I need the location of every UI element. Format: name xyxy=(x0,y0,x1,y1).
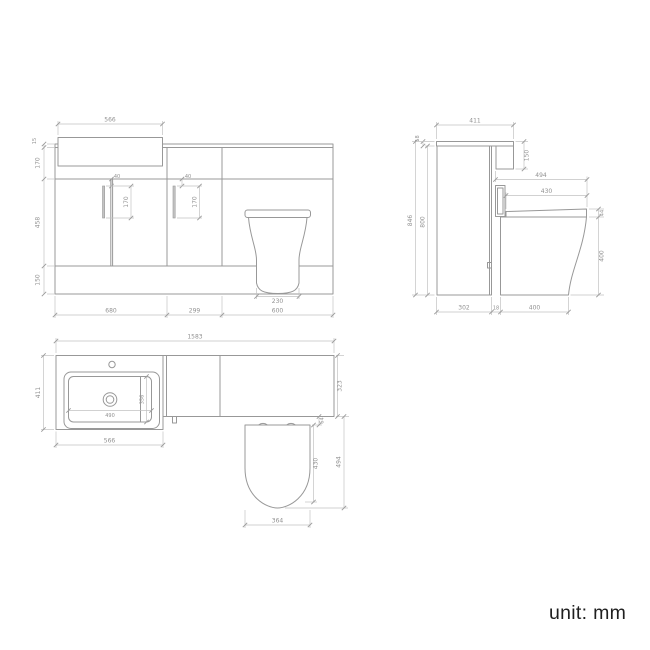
dim-pan-base-width: 230 xyxy=(272,298,284,305)
toilet-pan-side xyxy=(501,217,587,295)
dim-side-seat-depth: 430 xyxy=(541,188,553,195)
dim-plan-basin-width: 566 xyxy=(104,438,116,445)
unit-label: unit: mm xyxy=(549,602,626,625)
dim-side-worktop-depth: 411 xyxy=(469,118,481,125)
dim-side-cabinet-height: 800 xyxy=(420,216,427,228)
dim-side-pan-projection: 494 xyxy=(535,172,547,179)
front-elevation-view: 566 15 170 458 150 40 170 40 xyxy=(32,117,335,319)
dim-side-seat-thickness: 44 xyxy=(600,210,606,216)
fascia-return xyxy=(496,146,514,169)
door-handle-left xyxy=(103,186,105,218)
dim-front-basin-width: 566 xyxy=(104,117,116,124)
dim-vanity-unit-width: 680 xyxy=(105,308,117,315)
toilet-seat-plan xyxy=(245,425,310,508)
tap-hole xyxy=(109,361,115,367)
cabinet-side xyxy=(437,146,492,295)
door-handle-mid xyxy=(173,186,175,218)
basin-front xyxy=(58,138,163,167)
dim-front-worktop-thickness: 15 xyxy=(32,138,38,144)
dim-side-overall-height: 846 xyxy=(407,215,414,227)
dim-plan-basin-unit-depth: 411 xyxy=(35,387,42,399)
toilet-pan-front xyxy=(249,218,308,294)
toilet-seat-side xyxy=(506,209,587,217)
toilet-seat-front xyxy=(245,210,311,218)
dim-side-cabinet-depth: 302 xyxy=(458,305,470,312)
side-elevation-view: 411 18 150 846 800 494 xyxy=(407,118,606,316)
dim-front-plinth-height: 150 xyxy=(35,274,42,286)
dim-plan-seat-depth: 430 xyxy=(313,458,320,470)
dim-plan-bowl-width: 490 xyxy=(105,413,115,419)
dim-mid-handle-offset: 40 xyxy=(185,174,191,180)
dim-left-handle-offset: 40 xyxy=(114,174,120,180)
plan-view: 1583 411 490 356 566 323 xyxy=(35,334,349,529)
dim-mid-handle-length: 170 xyxy=(192,196,199,208)
dim-plan-seat-setback: 64 xyxy=(320,417,326,423)
flush-plate xyxy=(496,186,506,217)
dim-left-handle-length: 170 xyxy=(123,196,130,208)
dim-plan-worktop-depth: 323 xyxy=(337,380,344,392)
dim-mid-unit-width: 299 xyxy=(189,308,201,315)
dim-plan-bowl-depth: 356 xyxy=(140,395,146,405)
dim-front-basin-zone-height: 170 xyxy=(35,157,42,169)
dim-side-pan-depth: 400 xyxy=(529,305,541,312)
worktop-side xyxy=(437,142,514,147)
front-object-lines xyxy=(55,138,333,295)
dim-side-fascia-drop: 150 xyxy=(524,150,531,162)
dim-wc-unit-width: 600 xyxy=(272,308,284,315)
dim-side-gap: 18 xyxy=(493,306,499,312)
dim-plan-seat-width: 364 xyxy=(272,518,284,525)
handle-plan xyxy=(173,417,177,424)
side-object-lines xyxy=(437,142,587,296)
dim-plan-overall-width: 1583 xyxy=(187,334,202,341)
technical-drawing-page: 566 15 170 458 150 40 170 40 xyxy=(0,0,650,650)
dim-front-door-height: 458 xyxy=(35,217,42,229)
plan-object-lines xyxy=(56,356,334,509)
drawing-canvas: 566 15 170 458 150 40 170 40 xyxy=(0,0,650,650)
dim-side-pan-height: 400 xyxy=(599,250,606,262)
dim-plan-pan-projection: 494 xyxy=(336,456,343,468)
